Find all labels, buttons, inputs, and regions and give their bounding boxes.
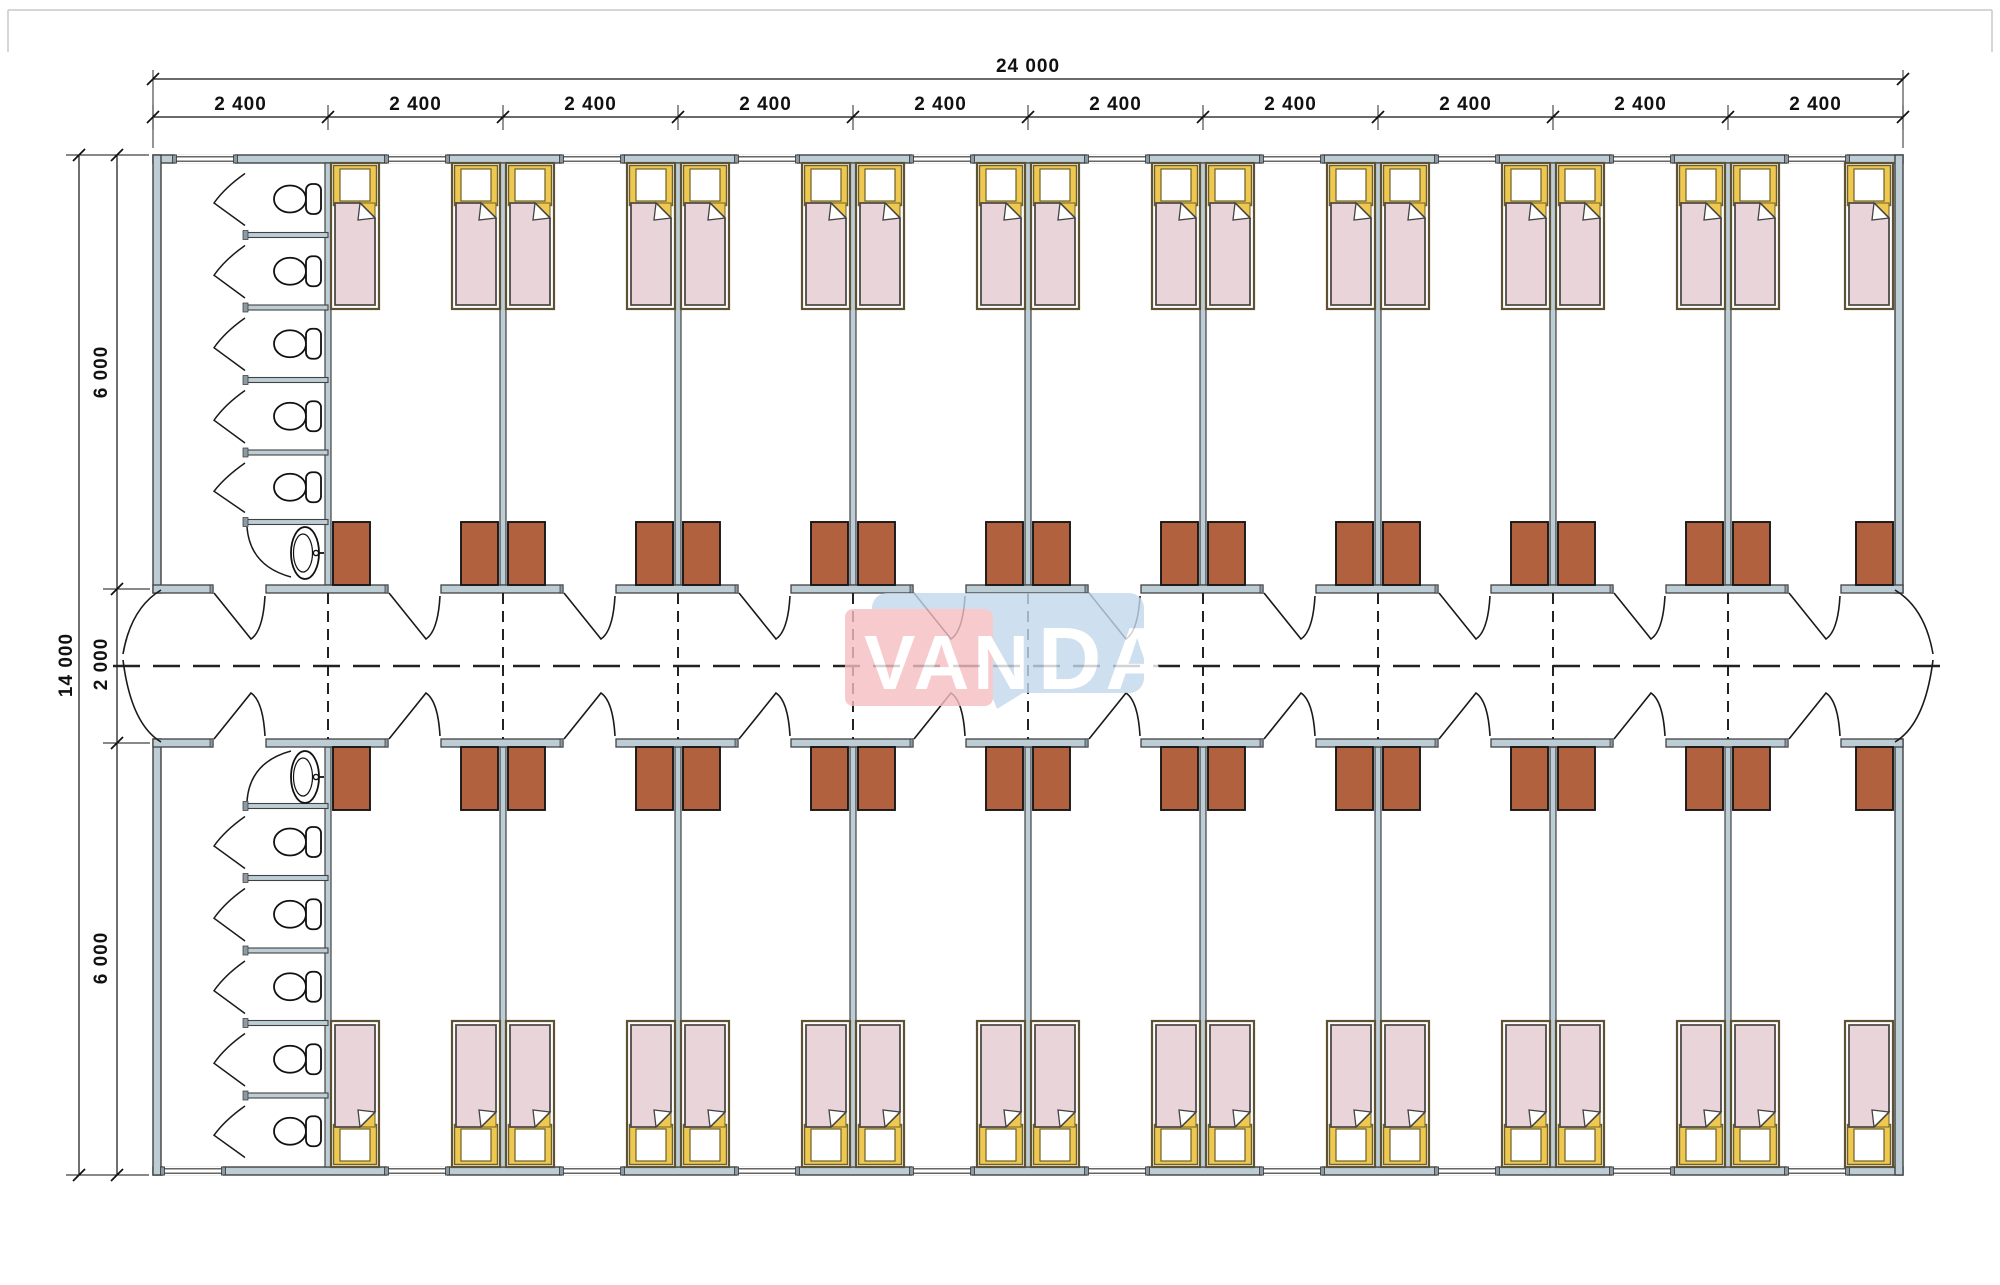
window	[912, 154, 972, 164]
wardrobe	[1383, 747, 1420, 810]
stall-jamb	[243, 231, 248, 240]
window	[163, 1166, 223, 1176]
sink-icon	[291, 527, 324, 579]
stall-wall	[245, 378, 328, 383]
wardrobe	[1161, 522, 1198, 585]
window	[387, 154, 447, 164]
door-jamb	[735, 585, 738, 593]
toilet-bowl	[274, 474, 306, 501]
bed-pillow	[1854, 169, 1884, 201]
bed-pillow	[1511, 1129, 1541, 1161]
stall-wall	[245, 1021, 328, 1026]
corridor-end-break	[1895, 660, 1933, 742]
bed	[681, 1021, 729, 1167]
bed	[1327, 163, 1375, 309]
wardrobe	[1733, 522, 1770, 585]
corridor-wall	[966, 739, 1088, 747]
bed-pillow	[986, 169, 1016, 201]
wardrobe	[1511, 747, 1548, 810]
door-jamb	[1435, 585, 1438, 593]
bed-pillow	[1740, 169, 1770, 201]
corridor-wall	[1841, 739, 1903, 747]
window-jamb	[385, 155, 389, 163]
dimension-label: 2 400	[1264, 94, 1317, 115]
window-jamb	[1846, 1167, 1850, 1175]
stall-jamb	[243, 1091, 248, 1100]
window-jamb	[560, 155, 564, 163]
stall-wall	[245, 804, 328, 809]
wardrobe	[1383, 522, 1420, 585]
stall-door	[214, 961, 245, 1014]
corridor-wall	[153, 739, 213, 747]
toilet-icon	[274, 972, 321, 1002]
window	[737, 154, 797, 164]
window-jamb	[796, 155, 800, 163]
door-arc	[1439, 593, 1490, 639]
stall-jamb	[243, 874, 248, 883]
wardrobe	[508, 747, 545, 810]
toilet-icon	[274, 329, 321, 359]
bed-pillow	[690, 169, 720, 201]
bed-pillow	[865, 169, 895, 201]
door-arc	[1789, 693, 1840, 739]
stall-wall	[245, 520, 328, 525]
window-jamb	[910, 155, 914, 163]
door-arc	[1614, 593, 1665, 639]
bed	[1152, 163, 1200, 309]
stall-wall	[245, 1093, 328, 1098]
door-arc	[1264, 693, 1315, 739]
wardrobe	[1686, 522, 1723, 585]
toilet-bowl	[274, 901, 306, 928]
corridor-wall	[616, 739, 738, 747]
window-jamb	[1321, 155, 1325, 163]
wardrobe	[811, 747, 848, 810]
stall-wall	[245, 948, 328, 953]
dimension-label: 6 000	[91, 932, 112, 985]
bed	[331, 1021, 379, 1167]
toilet-tank	[306, 329, 321, 359]
stall-wall	[245, 450, 328, 455]
window-jamb	[1085, 155, 1089, 163]
toilet-tank	[306, 899, 321, 929]
window	[1262, 154, 1322, 164]
stall-wall	[245, 876, 328, 881]
window-jamb	[1496, 155, 1500, 163]
bed-pillow	[461, 169, 491, 201]
window	[1787, 1166, 1847, 1176]
wardrobe	[636, 747, 673, 810]
toilet-tank	[306, 1044, 321, 1074]
bed-pillow	[1854, 1129, 1884, 1161]
bed	[1381, 1021, 1429, 1167]
window	[562, 154, 622, 164]
bed	[1206, 1021, 1254, 1167]
toilet-icon	[274, 827, 321, 857]
door-arc	[389, 593, 440, 639]
stall-jamb	[243, 518, 248, 527]
stall-door	[214, 463, 245, 513]
corridor-wall	[1316, 585, 1438, 593]
exterior-wall	[153, 155, 161, 593]
window-jamb	[735, 155, 739, 163]
door-jamb	[560, 585, 563, 593]
bed	[1677, 1021, 1725, 1167]
bed-pillow	[515, 1129, 545, 1161]
window	[1262, 1166, 1322, 1176]
dimension-label: 14 000	[56, 633, 77, 697]
bed	[1731, 1021, 1779, 1167]
bed-pillow	[636, 1129, 666, 1161]
toilet-bowl	[274, 1118, 306, 1145]
sink-basin-inner	[294, 534, 313, 572]
bed-pillow	[1390, 169, 1420, 201]
corridor-wall	[1141, 739, 1263, 747]
bed	[1502, 163, 1550, 309]
bed-pillow	[340, 1129, 370, 1161]
window-jamb	[735, 1167, 739, 1175]
corridor-wall	[441, 585, 563, 593]
window-jamb	[1321, 1167, 1325, 1175]
bed	[506, 163, 554, 309]
window	[387, 1166, 447, 1176]
window-jamb	[446, 155, 450, 163]
bed	[802, 163, 850, 309]
stall-jamb	[243, 303, 248, 312]
door-arc	[1789, 593, 1840, 639]
stall-door	[214, 1034, 245, 1087]
wardrobe	[1208, 522, 1245, 585]
toilet-bowl	[274, 403, 306, 430]
toilet-bowl	[274, 258, 306, 285]
wardrobe	[1733, 747, 1770, 810]
window-jamb	[173, 155, 177, 163]
door-jamb	[1610, 739, 1613, 747]
door-jamb	[1435, 739, 1438, 747]
window	[737, 1166, 797, 1176]
bed	[1556, 1021, 1604, 1167]
corridor-wall	[1666, 739, 1788, 747]
watermark: VANDA	[845, 593, 1173, 709]
door-arc	[1614, 693, 1665, 739]
bed-pillow	[1565, 169, 1595, 201]
window-jamb	[1785, 155, 1789, 163]
dimension-label: 2 400	[1789, 94, 1842, 115]
corridor-wall	[153, 585, 213, 593]
bed-pillow	[1686, 1129, 1716, 1161]
window	[562, 1166, 622, 1176]
bed	[977, 1021, 1025, 1167]
wardrobe	[1856, 747, 1893, 810]
bed-pillow	[1565, 1129, 1595, 1161]
door-arc	[1264, 593, 1315, 639]
toilet-tank	[306, 972, 321, 1002]
bed	[1677, 163, 1725, 309]
stall-door	[214, 174, 245, 226]
wardrobe	[811, 522, 848, 585]
window-jamb	[1085, 1167, 1089, 1175]
window-jamb	[1496, 1167, 1500, 1175]
wardrobe	[1208, 747, 1245, 810]
window-jamb	[1610, 1167, 1614, 1175]
window	[1437, 154, 1497, 164]
corridor-wall	[616, 585, 738, 593]
window	[912, 1166, 972, 1176]
toilet-bowl	[274, 1046, 306, 1073]
toilet-icon	[274, 401, 321, 431]
bed	[1206, 163, 1254, 309]
bed	[977, 163, 1025, 309]
toilet-icon	[274, 472, 321, 502]
corridor-wall	[441, 739, 563, 747]
window	[1437, 1166, 1497, 1176]
door-jamb	[910, 585, 913, 593]
window-jamb	[621, 1167, 625, 1175]
window	[1612, 154, 1672, 164]
bed-pillow	[811, 1129, 841, 1161]
door-arc	[214, 693, 265, 739]
door-jamb	[910, 739, 913, 747]
stall-door	[214, 1106, 245, 1158]
window-jamb	[1846, 155, 1850, 163]
sink-door-arc	[247, 751, 291, 801]
bed-pillow	[1686, 169, 1716, 201]
bed-pillow	[690, 1129, 720, 1161]
corridor-wall	[1491, 739, 1613, 747]
corridor-wall	[1491, 585, 1613, 593]
dimension-label: 2 400	[739, 94, 792, 115]
door-jamb	[1785, 585, 1788, 593]
wardrobe	[1856, 522, 1893, 585]
door-arc	[739, 593, 790, 639]
bed	[856, 163, 904, 309]
window-jamb	[385, 1167, 389, 1175]
window-jamb	[1260, 1167, 1264, 1175]
door-arc	[214, 593, 265, 639]
window-jamb	[446, 1167, 450, 1175]
stall-door	[214, 817, 245, 869]
stall-jamb	[243, 448, 248, 457]
bed-pillow	[1161, 1129, 1191, 1161]
toilet-tank	[306, 827, 321, 857]
bed	[1381, 163, 1429, 309]
bed-pillow	[1740, 1129, 1770, 1161]
watermark-text: VANDA	[864, 609, 1173, 708]
wardrobe	[858, 522, 895, 585]
dimension-label: 2 400	[914, 94, 967, 115]
wardrobe	[1511, 522, 1548, 585]
stall-door	[214, 889, 245, 942]
bed	[627, 1021, 675, 1167]
stall-jamb	[243, 376, 248, 385]
stall-door	[214, 246, 245, 299]
door-jamb	[1260, 585, 1263, 593]
bed-pillow	[636, 169, 666, 201]
bed-pillow	[1215, 169, 1245, 201]
bed	[452, 163, 500, 309]
corridor-wall	[266, 585, 388, 593]
bed	[331, 163, 379, 309]
bed-pillow	[865, 1129, 895, 1161]
wardrobe	[333, 522, 370, 585]
toilet-icon	[274, 256, 321, 286]
corridor-end-break	[123, 590, 161, 654]
stall-door	[214, 318, 245, 371]
door-jamb	[210, 585, 213, 593]
toilet-tank	[306, 184, 321, 214]
wardrobe	[1033, 747, 1070, 810]
page-frame	[8, 10, 1992, 52]
bed-pillow	[1511, 169, 1541, 201]
bed	[1031, 163, 1079, 309]
corridor-wall	[1141, 585, 1263, 593]
window	[1087, 1166, 1147, 1176]
bed-pillow	[1336, 169, 1366, 201]
door-jamb	[560, 739, 563, 747]
wardrobe	[683, 747, 720, 810]
bed	[856, 1021, 904, 1167]
corridor-wall	[1316, 739, 1438, 747]
bed	[802, 1021, 850, 1167]
door-arc	[739, 693, 790, 739]
bed	[452, 1021, 500, 1167]
toilet-bowl	[274, 330, 306, 357]
toilet-tank	[306, 401, 321, 431]
door-jamb	[1785, 739, 1788, 747]
dimension-label: 2 400	[1089, 94, 1142, 115]
bed	[1031, 1021, 1079, 1167]
sink-icon	[291, 751, 324, 803]
stall-door	[214, 391, 245, 444]
window-jamb	[234, 155, 238, 163]
sink-basin-inner	[294, 758, 313, 796]
sink-tap	[313, 774, 318, 779]
window	[1087, 154, 1147, 164]
window-jamb	[1146, 1167, 1150, 1175]
bed	[1152, 1021, 1200, 1167]
bed	[1731, 163, 1779, 309]
toilet-tank	[306, 256, 321, 286]
wardrobe	[1161, 747, 1198, 810]
door-jamb	[1085, 585, 1088, 593]
toilet-bowl	[274, 186, 306, 213]
sink-door-arc	[247, 527, 291, 577]
bed	[506, 1021, 554, 1167]
window-jamb	[222, 1167, 226, 1175]
bed-pillow	[461, 1129, 491, 1161]
stall-jamb	[243, 802, 248, 811]
door-jamb	[1610, 585, 1613, 593]
toilet-icon	[274, 899, 321, 929]
toilet-icon	[274, 1116, 321, 1146]
door-jamb	[735, 739, 738, 747]
wardrobe	[333, 747, 370, 810]
door-jamb	[385, 739, 388, 747]
toilet-icon	[274, 1044, 321, 1074]
bed-pillow	[986, 1129, 1016, 1161]
stall-jamb	[243, 946, 248, 955]
window-jamb	[1146, 155, 1150, 163]
door-jamb	[210, 739, 213, 747]
stall-jamb	[243, 1019, 248, 1028]
stall-wall	[245, 305, 328, 310]
window-jamb	[1610, 155, 1614, 163]
window	[175, 154, 235, 164]
bed-pillow	[811, 169, 841, 201]
corridor-end-break	[1895, 590, 1933, 654]
window-jamb	[971, 1167, 975, 1175]
wardrobe	[1033, 522, 1070, 585]
bed-pillow	[1040, 1129, 1070, 1161]
window-jamb	[1671, 155, 1675, 163]
toilet-bowl	[274, 829, 306, 856]
bed	[1502, 1021, 1550, 1167]
window	[1787, 154, 1847, 164]
stall-wall	[245, 233, 328, 238]
bed-pillow	[1040, 169, 1070, 201]
bed-pillow	[515, 169, 545, 201]
door-arc	[564, 693, 615, 739]
window-jamb	[796, 1167, 800, 1175]
bed	[681, 163, 729, 309]
window-jamb	[621, 155, 625, 163]
window-jamb	[1435, 155, 1439, 163]
bed-pillow	[340, 169, 370, 201]
bed-pillow	[1336, 1129, 1366, 1161]
floor-plan-canvas: 24 0002 4002 4002 4002 4002 4002 4002 40…	[0, 0, 2000, 1285]
window-jamb	[1671, 1167, 1675, 1175]
wardrobe	[986, 522, 1023, 585]
door-arc	[564, 593, 615, 639]
door-arc	[1439, 693, 1490, 739]
dimension-label: 2 000	[91, 638, 112, 691]
wardrobe	[1558, 747, 1595, 810]
toilet-tank	[306, 472, 321, 502]
wardrobe	[1336, 747, 1373, 810]
bed	[1327, 1021, 1375, 1167]
bed-pillow	[1390, 1129, 1420, 1161]
exterior-wall	[153, 739, 161, 1175]
dimension-label: 2 400	[389, 94, 442, 115]
exterior-wall	[1895, 155, 1903, 593]
window-jamb	[910, 1167, 914, 1175]
bed	[1845, 163, 1893, 309]
window-jamb	[1785, 1167, 1789, 1175]
door-jamb	[1260, 739, 1263, 747]
dimension-label: 6 000	[91, 346, 112, 399]
wardrobe	[986, 747, 1023, 810]
bed-pillow	[1215, 1129, 1245, 1161]
window-jamb	[971, 155, 975, 163]
dimension-label: 2 400	[1439, 94, 1492, 115]
window-jamb	[1435, 1167, 1439, 1175]
corridor-wall	[1666, 585, 1788, 593]
toilet-tank	[306, 1116, 321, 1146]
dimension-label: 24 000	[996, 56, 1060, 77]
window	[1612, 1166, 1672, 1176]
door-jamb	[385, 585, 388, 593]
window-jamb	[560, 1167, 564, 1175]
window-jamb	[161, 1167, 165, 1175]
corridor-wall	[966, 585, 1088, 593]
bed-pillow	[1161, 169, 1191, 201]
wardrobe	[1336, 522, 1373, 585]
bed	[1556, 163, 1604, 309]
toilet-bowl	[274, 973, 306, 1000]
bed	[1845, 1021, 1893, 1167]
corridor-wall	[266, 739, 388, 747]
wardrobe	[858, 747, 895, 810]
